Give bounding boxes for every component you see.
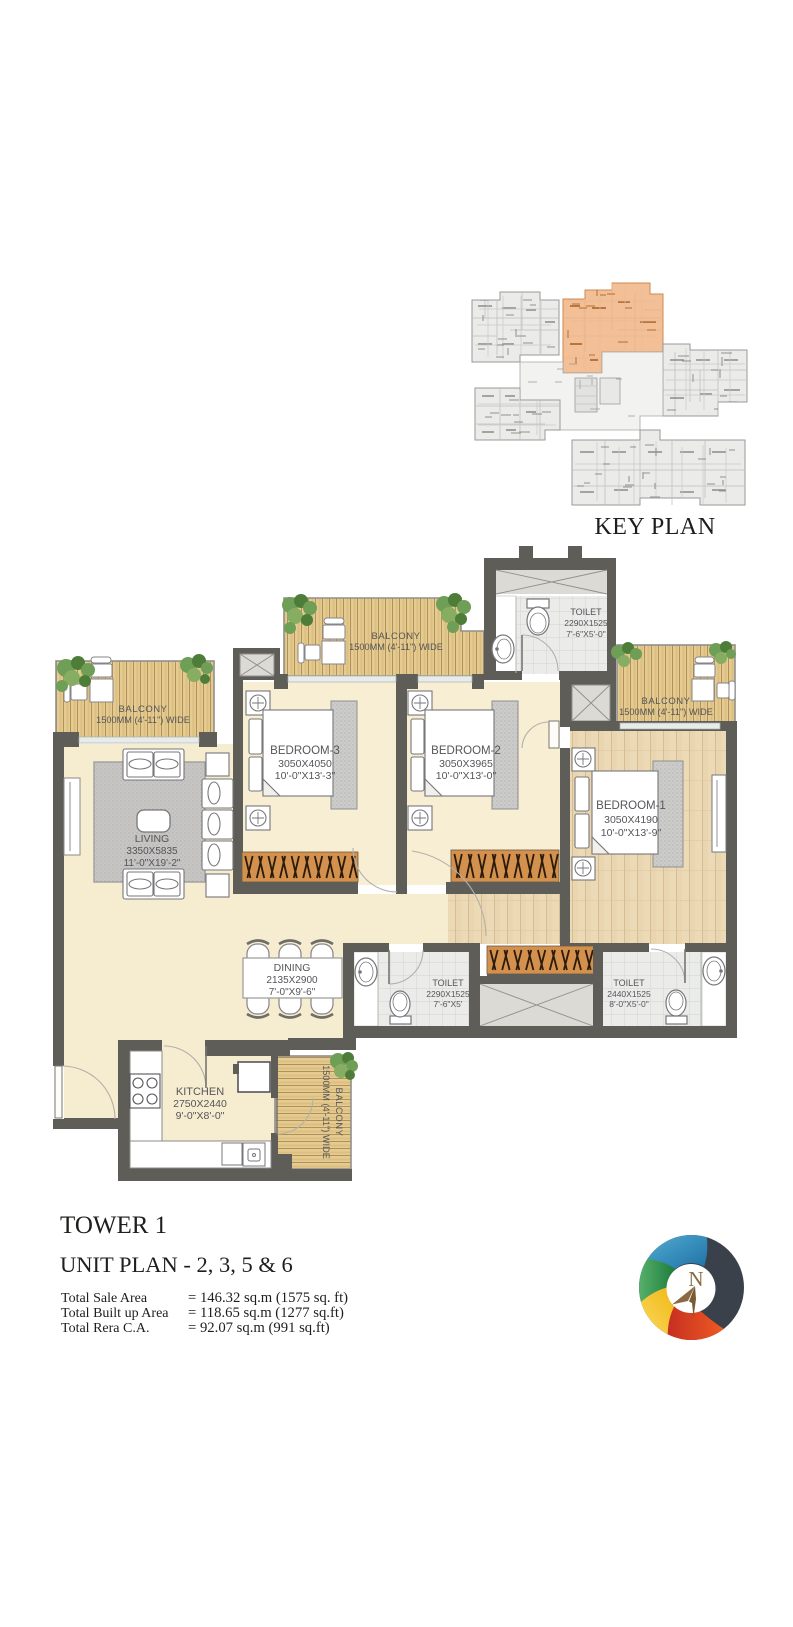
svg-text:Total Built up Area: Total Built up Area [61,1306,169,1321]
svg-text:BALCONY: BALCONY [333,1088,344,1137]
svg-text:UNIT PLAN - 2, 3, 5 & 6: UNIT PLAN - 2, 3, 5 & 6 [60,1252,293,1277]
svg-text:BALCONY: BALCONY [119,704,168,715]
svg-text:2290X1525: 2290X1525 [564,618,608,628]
svg-text:3050X4050: 3050X4050 [278,758,332,770]
svg-text:2135X2900: 2135X2900 [266,975,318,986]
svg-text:3050X4190: 3050X4190 [604,814,658,826]
svg-text:BEDROOM-1: BEDROOM-1 [596,800,666,812]
svg-text:10'-0"X13'-9": 10'-0"X13'-9" [601,827,662,839]
svg-text:TOILET: TOILET [613,978,645,988]
svg-text:BEDROOM-3: BEDROOM-3 [270,745,340,757]
svg-text:= 118.65 sq.m (1277 sq.ft): = 118.65 sq.m (1277 sq.ft) [188,1305,344,1321]
svg-text:KITCHEN: KITCHEN [176,1086,224,1098]
svg-text:9'-0"X8'-0": 9'-0"X8'-0" [176,1110,225,1122]
svg-text:BEDROOM-2: BEDROOM-2 [431,745,501,757]
svg-text:2750X2440: 2750X2440 [173,1098,227,1110]
svg-text:1500MM (4'-11") WIDE: 1500MM (4'-11") WIDE [321,1065,331,1159]
svg-text:BALCONY: BALCONY [372,631,421,642]
svg-text:N: N [688,1267,703,1291]
svg-text:1500MM (4'-11") WIDE: 1500MM (4'-11") WIDE [619,707,713,717]
svg-text:= 92.07 sq.m (991 sq.ft): = 92.07 sq.m (991 sq.ft) [188,1320,330,1336]
svg-text:7'-0"X9'-6": 7'-0"X9'-6" [269,987,316,998]
svg-text:TOWER 1: TOWER 1 [60,1212,167,1239]
svg-text:= 146.32 sq.m (1575 sq. ft): = 146.32 sq.m (1575 sq. ft) [188,1290,348,1306]
svg-text:LIVING: LIVING [135,833,169,845]
svg-text:BALCONY: BALCONY [642,696,691,707]
svg-text:DINING: DINING [274,962,311,974]
svg-text:Total Sale Area: Total Sale Area [61,1291,148,1306]
svg-text:Total Rera C.A.: Total Rera C.A. [61,1321,149,1336]
svg-text:1500MM (4'-11") WIDE: 1500MM (4'-11") WIDE [96,715,190,725]
svg-text:8'-0"X5'-0": 8'-0"X5'-0" [609,999,649,1009]
svg-text:TOILET: TOILET [570,607,602,617]
svg-text:3050X3965: 3050X3965 [439,758,493,770]
svg-text:7'-6"X5'-0": 7'-6"X5'-0" [566,629,606,639]
svg-text:1500MM (4'-11") WIDE: 1500MM (4'-11") WIDE [349,642,443,652]
svg-text:2290X1525: 2290X1525 [426,989,470,999]
svg-text:7'-6"X5': 7'-6"X5' [434,999,463,1009]
svg-text:3350X5835: 3350X5835 [126,846,178,857]
svg-text:KEY PLAN: KEY PLAN [594,514,715,540]
svg-text:10'-0"X13'-0": 10'-0"X13'-0" [436,770,497,782]
svg-text:11'-0"X19'-2": 11'-0"X19'-2" [124,858,181,869]
svg-text:2440X1525: 2440X1525 [607,989,651,999]
svg-text:TOILET: TOILET [432,978,464,988]
svg-text:10'-0"X13'-3": 10'-0"X13'-3" [275,770,336,782]
